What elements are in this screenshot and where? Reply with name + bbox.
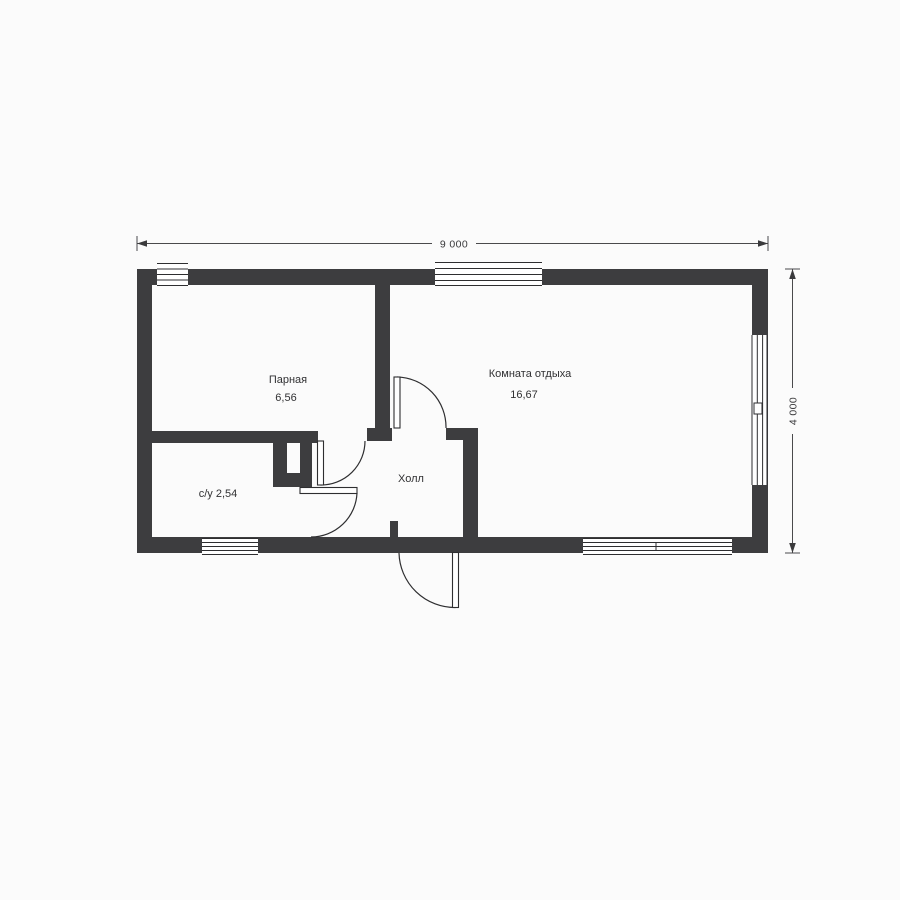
door-leaf [318, 441, 324, 485]
room-area-lounge: 16,67 [510, 389, 538, 401]
dimension-right: 4 000 [785, 269, 800, 553]
wall-divider-su [137, 431, 318, 443]
window-top-center [435, 262, 542, 286]
door-leaf [394, 377, 400, 428]
wall-left [137, 269, 152, 553]
room-label-parnaya: Парная [269, 374, 307, 386]
dim-arrow-bottom [789, 543, 796, 553]
window-bottom-right [583, 538, 732, 555]
dimension-top-label: 9 000 [440, 239, 468, 251]
dimension-right-label: 4 000 [787, 397, 799, 425]
room-label-lounge: Комната отдыха [489, 368, 572, 380]
door-su [300, 488, 357, 538]
window-handle [754, 403, 762, 414]
window-top-left [157, 263, 188, 286]
door-parnaya [318, 441, 366, 485]
wall-hall-right [463, 428, 478, 553]
wall-partition-parnaya [375, 285, 390, 428]
dim-arrow-right [758, 240, 768, 247]
door-swing-arc [321, 441, 366, 485]
walls [137, 269, 768, 553]
door-leaf [300, 488, 357, 494]
wall-partition-parnaya-foot [367, 428, 392, 441]
door-swing-arc [399, 553, 456, 608]
floor-plan-page: 9 000 4 000 Парная 6,56 Комната отдыха 1… [0, 0, 900, 900]
room-label-su: с/у 2,54 [199, 488, 238, 500]
dimension-top: 9 000 [137, 236, 768, 251]
window-bottom-left [202, 538, 258, 555]
dim-arrow-top [789, 269, 796, 279]
door-entrance [399, 553, 459, 608]
dim-arrow-left [137, 240, 147, 247]
wall-entrance-jamb [390, 521, 398, 537]
door-leaf [453, 553, 459, 608]
room-label-hall: Холл [398, 473, 424, 485]
flue-opening [287, 443, 300, 473]
room-area-parnaya: 6,56 [275, 392, 296, 404]
window-right-wall [752, 335, 768, 485]
door-hall-to-lounge [394, 377, 446, 428]
door-swing-arc [397, 377, 446, 428]
door-swing-arc [311, 493, 357, 537]
floor-plan: 9 000 4 000 Парная 6,56 Комната отдыха 1… [0, 0, 900, 900]
